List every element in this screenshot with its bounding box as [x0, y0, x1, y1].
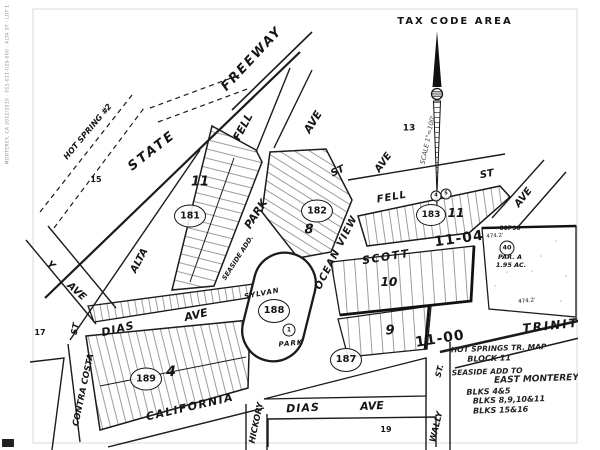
area-number-13: 13: [403, 125, 416, 134]
block-187-circle: 187: [330, 348, 362, 372]
scan-artifact: [2, 439, 14, 447]
y-ave-line-1: [26, 240, 96, 324]
block-188-circle: 188: [258, 299, 290, 323]
scan-edge-microprint: MONTEREY, CA 2012/2019 · 011-021-025-000…: [6, 25, 11, 165]
assessor-plat-map: TAX CODE AREA SCALE 1"=100' MONTEREY, CA…: [0, 0, 600, 450]
street-label-dias-lower: DIAS: [286, 402, 320, 415]
corner-road-line: [30, 358, 64, 450]
state-freeway-line: [45, 52, 300, 298]
area-number-17: 17: [34, 329, 45, 337]
block-9-number: 9: [385, 325, 394, 338]
parcel-a-ref: 80P90: [499, 226, 520, 232]
block-189-circle: 189: [130, 368, 162, 391]
parcel-a-acreage: 1.95 AC.: [496, 262, 526, 269]
block-11-number-east: 11: [448, 207, 465, 219]
tax-code-area-title: TAX CODE AREA: [397, 17, 512, 27]
scan-edge-cover: [578, 0, 600, 450]
park-lot-1-circle: 1: [283, 324, 296, 337]
block-11-number: 11: [191, 176, 209, 189]
block-10-number: 10: [381, 276, 398, 288]
block-8-number: 8: [304, 224, 313, 237]
map-legend: HOT SPRINGS TR. MAP BLOCK 11 SEASIDE ADD…: [451, 342, 587, 417]
north-arrow-top-spike: [433, 31, 442, 87]
area-number-19: 19: [380, 426, 391, 434]
area-number-15: 15: [90, 176, 101, 184]
block-183-circle: 183: [416, 204, 446, 226]
lot-5-circle: 5: [441, 189, 452, 200]
block-4-number: 4: [166, 365, 176, 379]
fell-ave-line-e: [274, 70, 312, 148]
block-182-circle: 182: [301, 200, 333, 223]
street-label-contra-costa-suffix: ST: [71, 322, 82, 335]
hot-spring-road-line: [40, 95, 132, 212]
block-181-circle: 181: [174, 205, 206, 228]
parcel-a-name: PAR. A: [498, 254, 522, 261]
street-label-dias-lower-suffix: AVE: [360, 400, 384, 412]
